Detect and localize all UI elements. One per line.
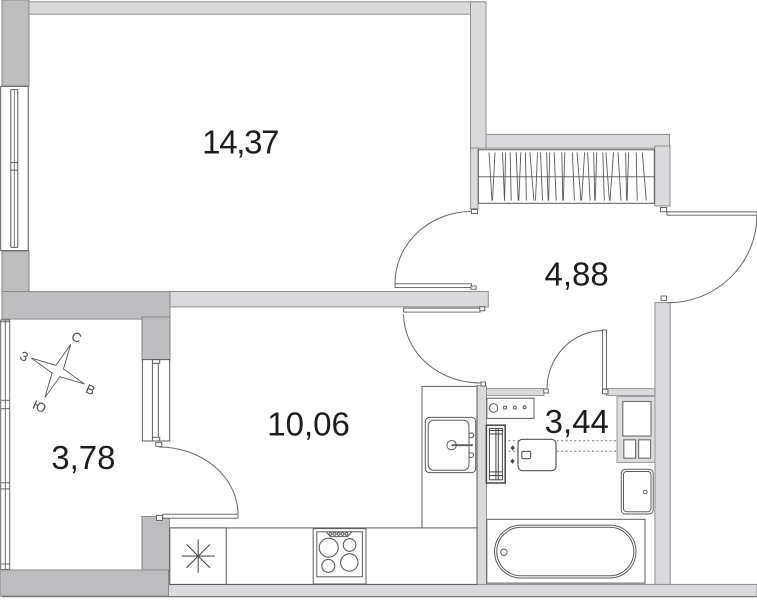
svg-text:3,78: 3,78 [51, 439, 115, 476]
svg-text:3,44: 3,44 [545, 403, 609, 440]
svg-text:4,88: 4,88 [544, 255, 608, 292]
svg-text:10,06: 10,06 [267, 406, 350, 443]
svg-text:14,37: 14,37 [202, 123, 278, 160]
